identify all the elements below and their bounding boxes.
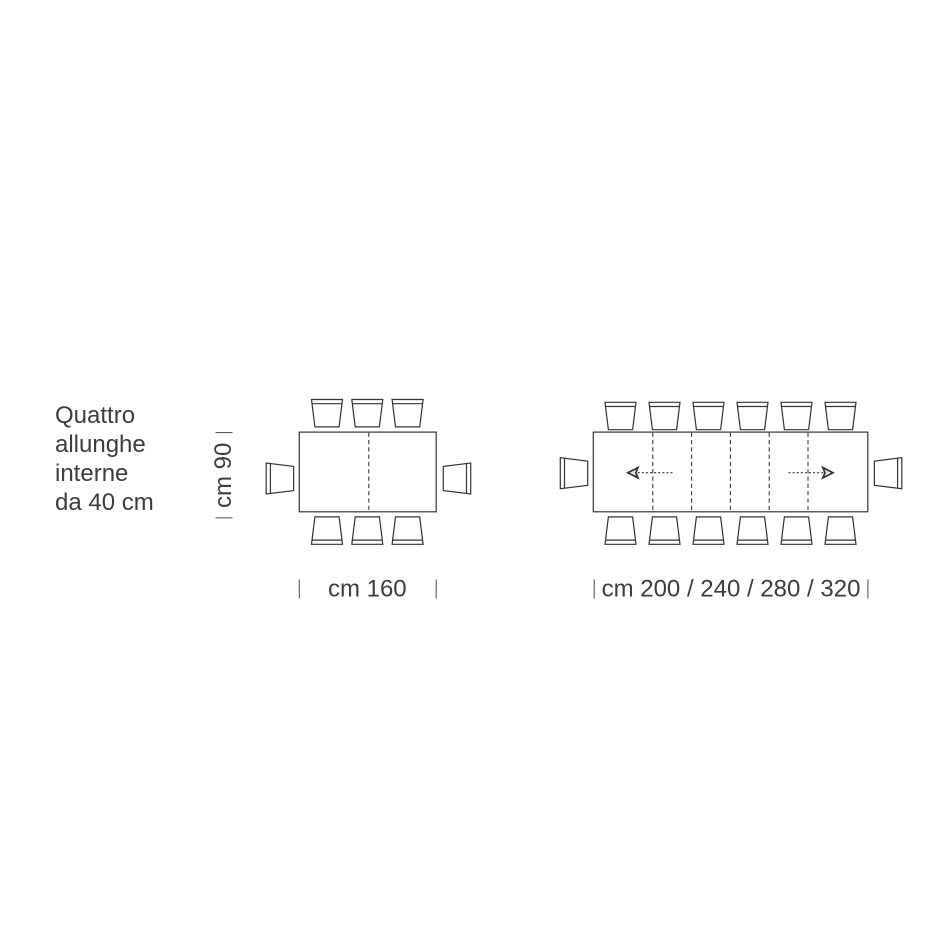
- svg-text:Quattro: Quattro: [55, 402, 135, 429]
- svg-text:cm 160: cm 160: [328, 576, 407, 603]
- svg-text:allunghe: allunghe: [55, 431, 146, 458]
- svg-text:cm 90: cm 90: [210, 443, 237, 508]
- svg-text:cm 200 / 240 / 280 / 320: cm 200 / 240 / 280 / 320: [602, 576, 861, 603]
- svg-text:da 40 cm: da 40 cm: [55, 489, 154, 516]
- svg-text:interne: interne: [55, 460, 128, 487]
